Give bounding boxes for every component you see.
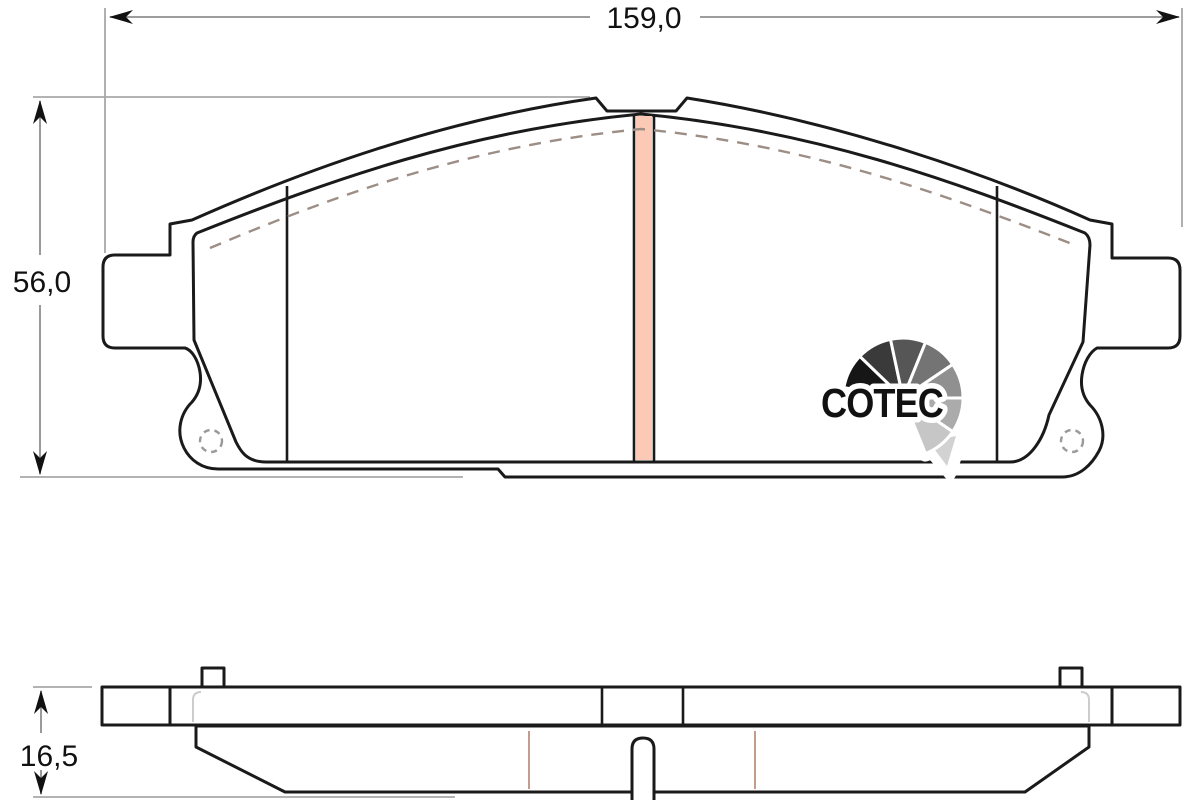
dimension-height: 56,0 bbox=[13, 101, 71, 474]
drawing-svg: 159,0 56,0 16,5 bbox=[0, 0, 1200, 800]
dim-label-thickness: 16,5 bbox=[20, 740, 78, 773]
center-slot-strip bbox=[636, 116, 652, 460]
side-tab-right bbox=[1060, 668, 1082, 688]
brake-pad-technical-drawing: 159,0 56,0 16,5 bbox=[0, 0, 1200, 800]
dimension-thickness: 16,5 bbox=[20, 691, 78, 794]
logo-text: COTEC bbox=[821, 380, 943, 426]
dimension-width: 159,0 bbox=[110, 2, 1179, 35]
side-ear-left bbox=[102, 687, 170, 725]
plan-view: COTEC bbox=[103, 98, 1180, 477]
side-tab-left bbox=[202, 668, 224, 688]
side-ear-right bbox=[1112, 687, 1180, 725]
dim-label-height: 56,0 bbox=[13, 266, 71, 299]
side-view bbox=[102, 668, 1180, 800]
dim-label-width: 159,0 bbox=[606, 2, 681, 35]
side-center-slot bbox=[632, 738, 654, 800]
side-backplate bbox=[170, 687, 1112, 725]
